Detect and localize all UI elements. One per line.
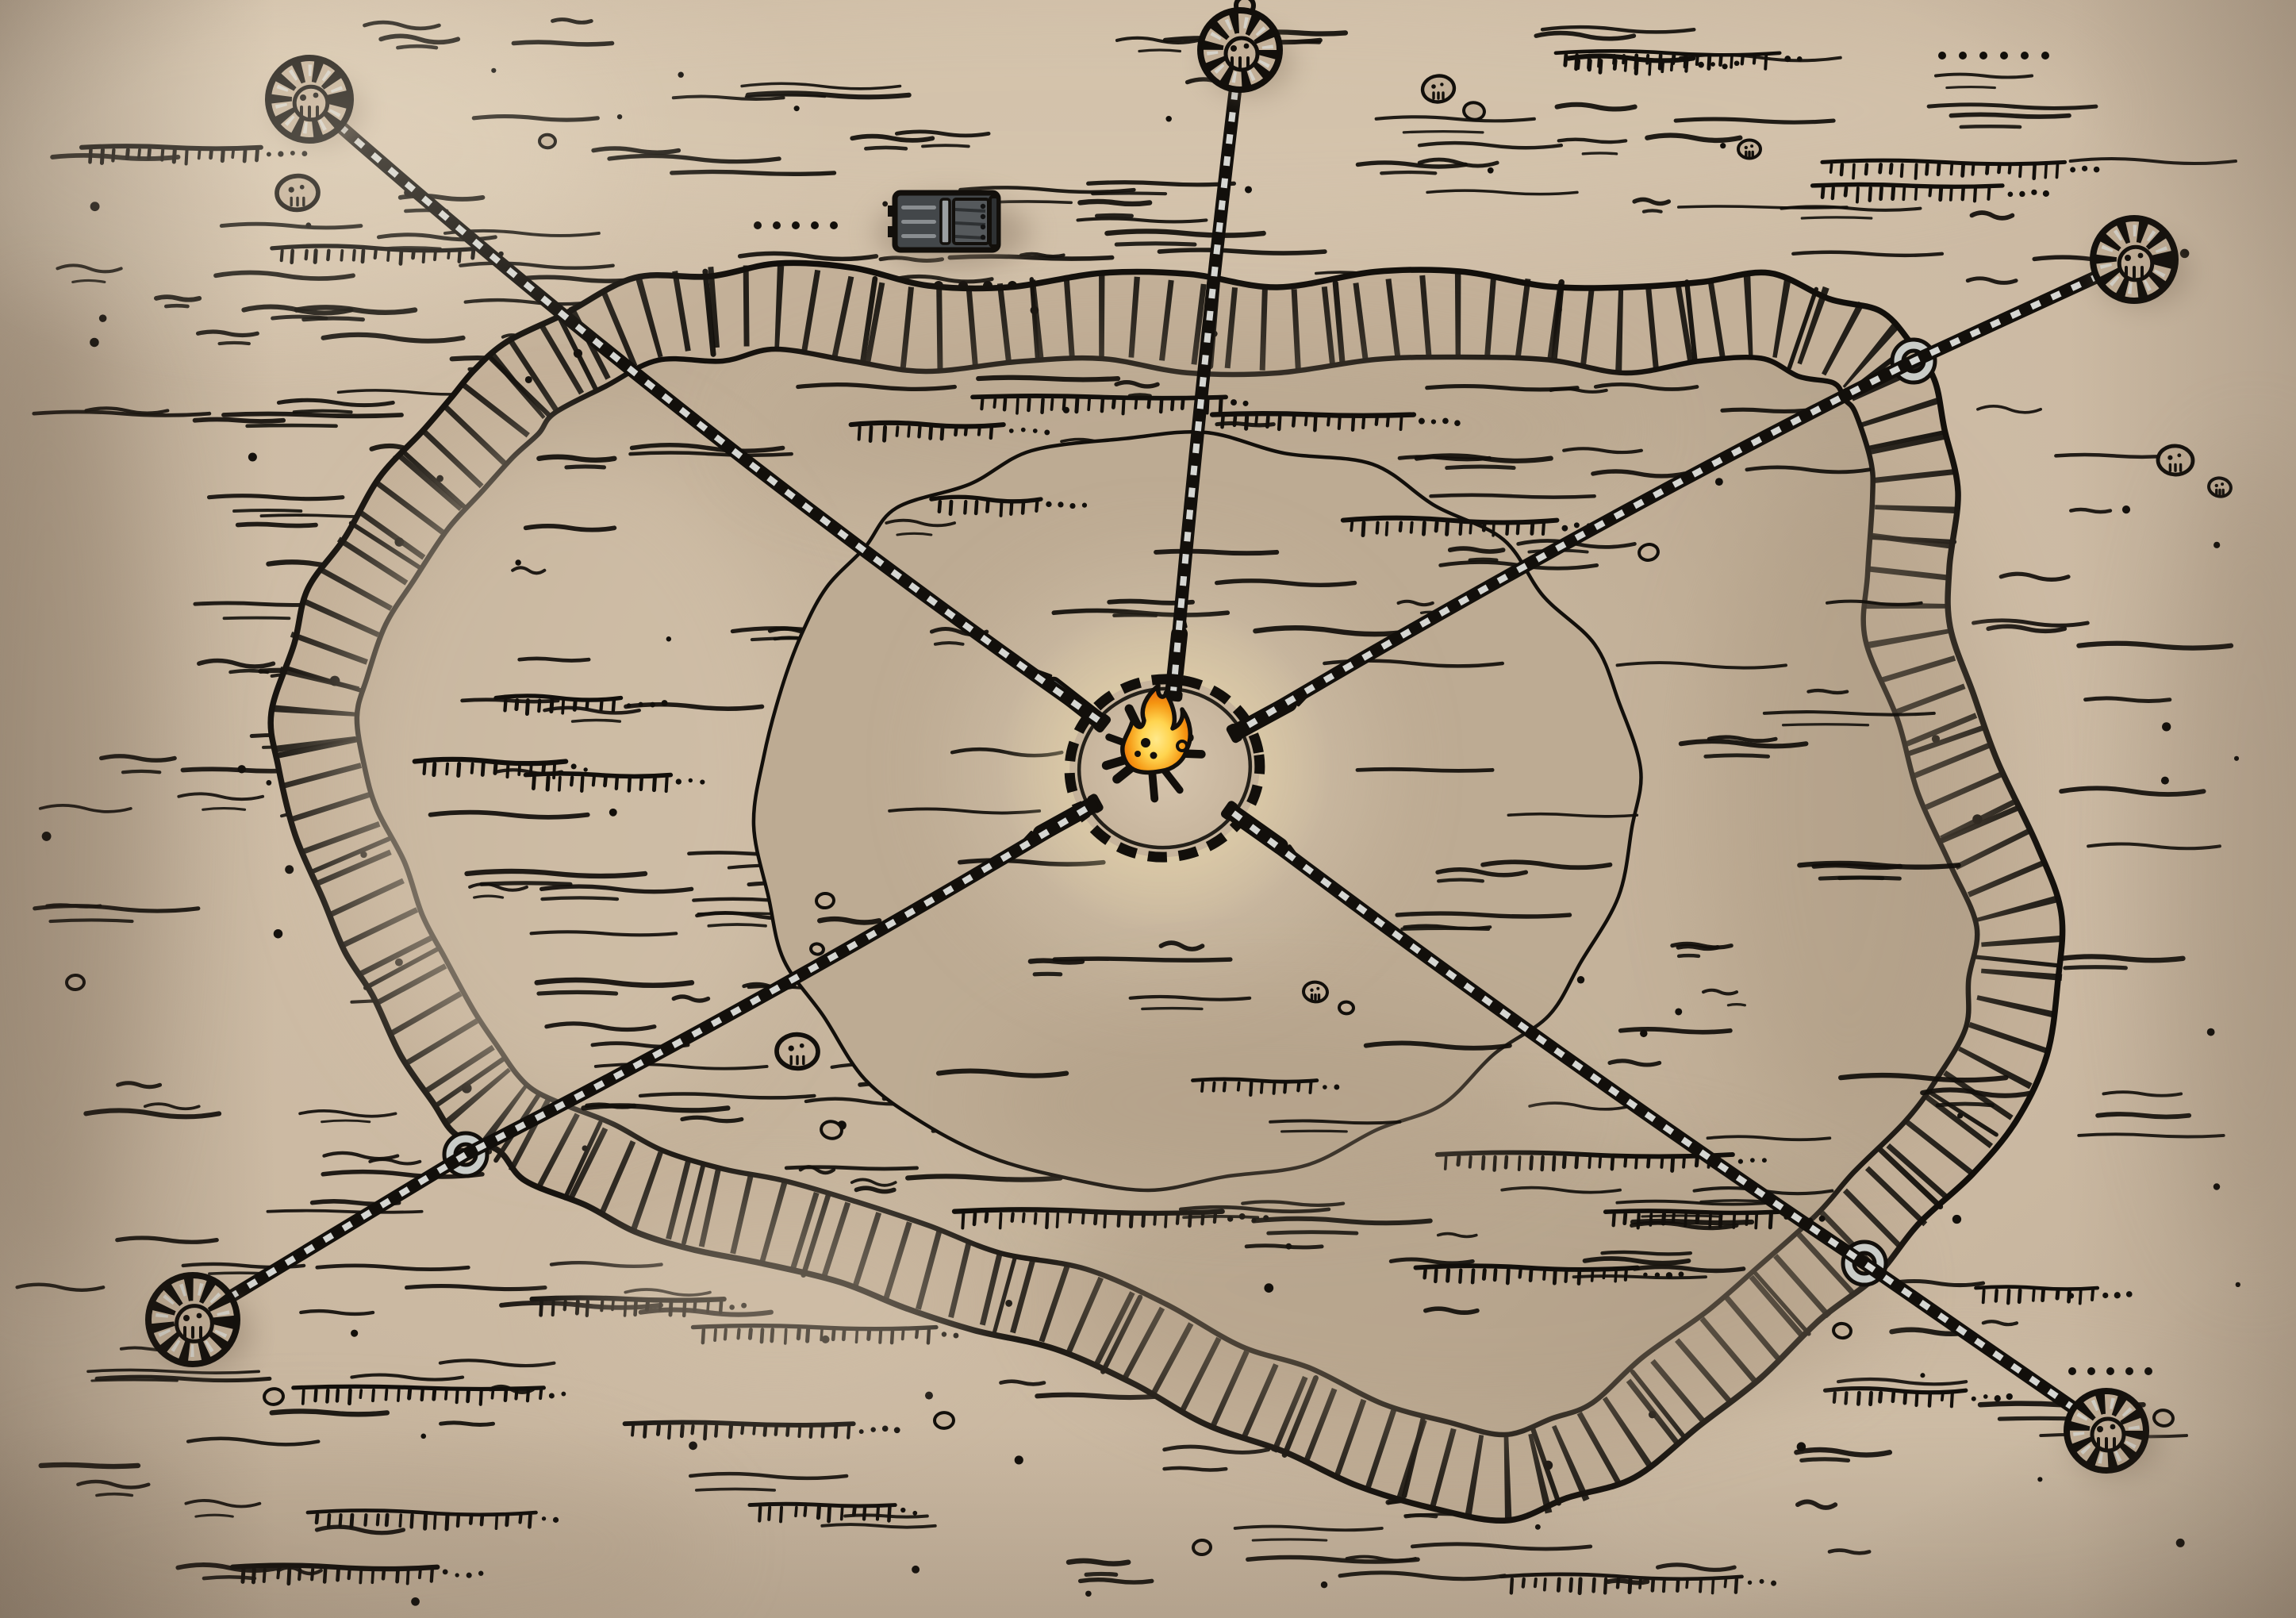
map-stage	[0, 0, 2296, 1618]
vignette	[0, 0, 2296, 1618]
map-illustration	[0, 0, 2296, 1618]
